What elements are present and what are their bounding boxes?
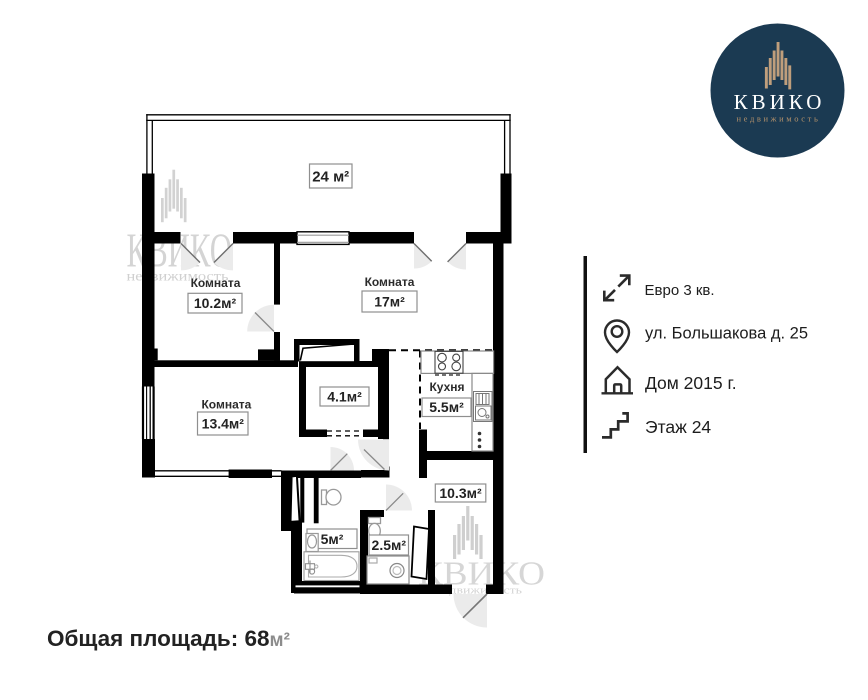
svg-text:Комната: Комната — [191, 276, 241, 290]
svg-text:4.1м²: 4.1м² — [327, 389, 362, 405]
svg-text:ул. Большакова д. 25: ул. Большакова д. 25 — [645, 325, 808, 343]
svg-text:17м²: 17м² — [374, 294, 405, 310]
svg-text:Евро 3 кв.: Евро 3 кв. — [645, 282, 715, 299]
svg-text:10.3м²: 10.3м² — [439, 485, 482, 501]
svg-text:Этаж 24: Этаж 24 — [645, 417, 711, 437]
svg-text:Кухня: Кухня — [429, 380, 464, 394]
svg-text:10.2м²: 10.2м² — [194, 295, 237, 311]
svg-text:Комната: Комната — [365, 275, 415, 289]
svg-text:13.4м²: 13.4м² — [202, 416, 245, 432]
svg-text:Дом 2015 г.: Дом 2015 г. — [645, 373, 737, 393]
svg-text:недвижимость: недвижимость — [737, 114, 821, 124]
svg-text:5.5м²: 5.5м² — [429, 399, 464, 415]
svg-text:КВИКО: КВИКО — [734, 90, 826, 114]
svg-text:Комната: Комната — [201, 398, 251, 412]
svg-text:24 м²: 24 м² — [312, 169, 349, 186]
svg-text:Общая площадь: 68м²: Общая площадь: 68м² — [47, 626, 290, 651]
svg-text:2.5м²: 2.5м² — [372, 537, 407, 553]
svg-text:5м²: 5м² — [321, 531, 344, 547]
